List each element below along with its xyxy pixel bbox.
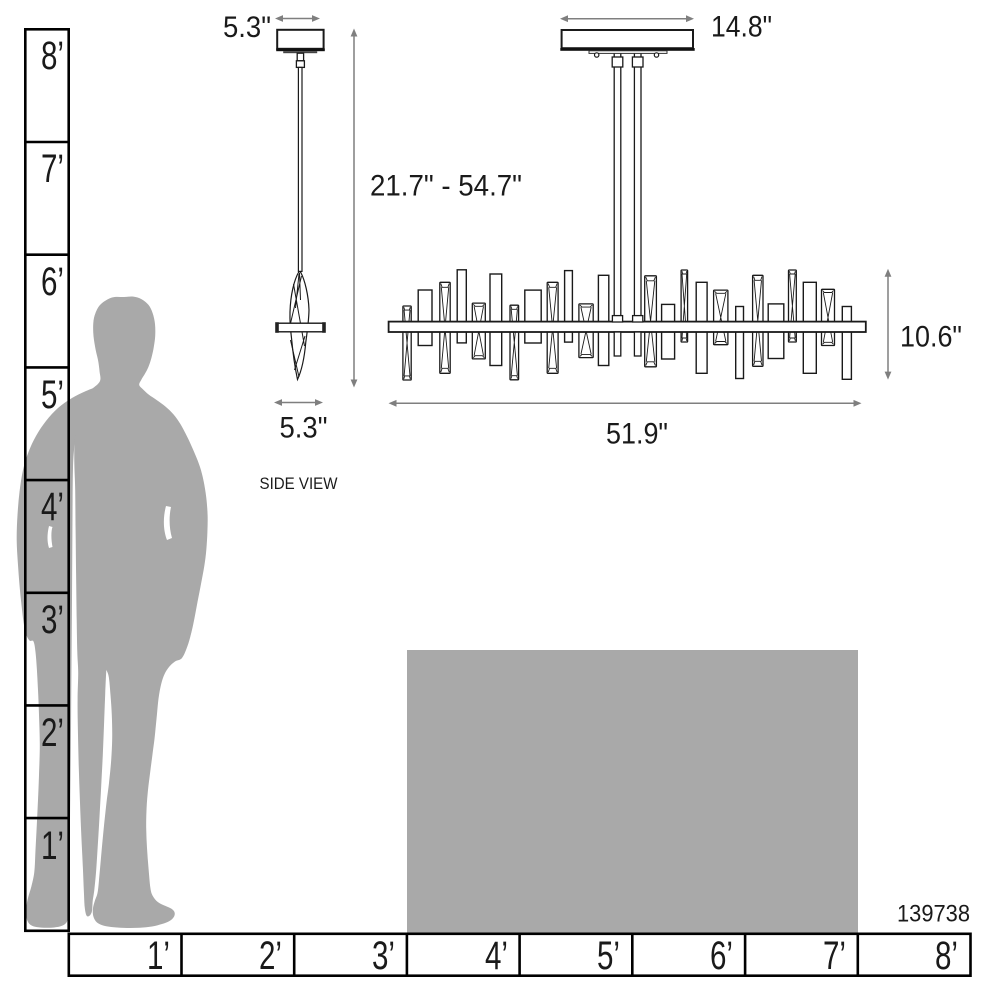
svg-text:1’: 1’ [41, 824, 64, 868]
svg-text:6’: 6’ [41, 260, 64, 304]
svg-text:5.3": 5.3" [223, 11, 271, 44]
svg-text:4’: 4’ [41, 485, 64, 529]
svg-text:2’: 2’ [259, 934, 282, 978]
svg-text:21.7" - 54.7": 21.7" - 54.7" [370, 170, 522, 203]
svg-text:14.8": 14.8" [711, 11, 772, 44]
svg-text:5.3": 5.3" [280, 412, 328, 445]
svg-text:5’: 5’ [41, 373, 64, 417]
svg-text:4’: 4’ [485, 934, 508, 978]
svg-text:139738: 139738 [897, 901, 970, 928]
svg-text:2’: 2’ [41, 711, 64, 755]
svg-text:5’: 5’ [597, 934, 620, 978]
svg-text:7’: 7’ [41, 147, 64, 191]
svg-text:8’: 8’ [935, 934, 958, 978]
svg-text:3’: 3’ [41, 598, 64, 642]
svg-text:10.6": 10.6" [900, 321, 962, 354]
svg-text:6’: 6’ [710, 934, 733, 978]
svg-text:51.9": 51.9" [606, 418, 668, 451]
svg-text:SIDE VIEW: SIDE VIEW [260, 474, 338, 493]
svg-text:8’: 8’ [41, 34, 64, 78]
svg-text:7’: 7’ [823, 934, 846, 978]
svg-text:1’: 1’ [147, 934, 170, 978]
svg-text:3’: 3’ [372, 934, 395, 978]
